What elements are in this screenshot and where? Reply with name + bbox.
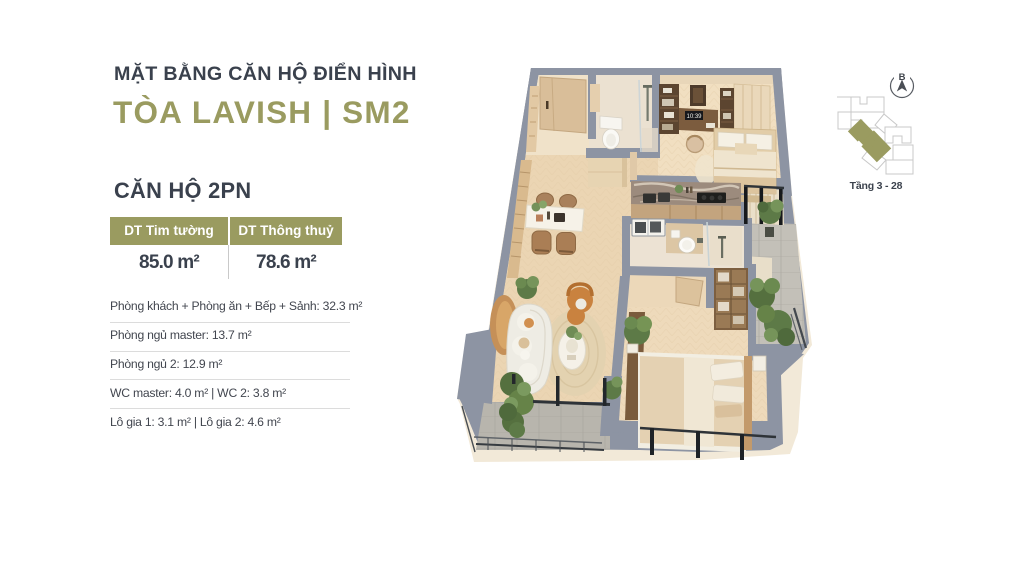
svg-text:Tầng 3 - 28: Tầng 3 - 28 <box>850 180 903 192</box>
svg-text:10:39: 10:39 <box>686 114 702 120</box>
